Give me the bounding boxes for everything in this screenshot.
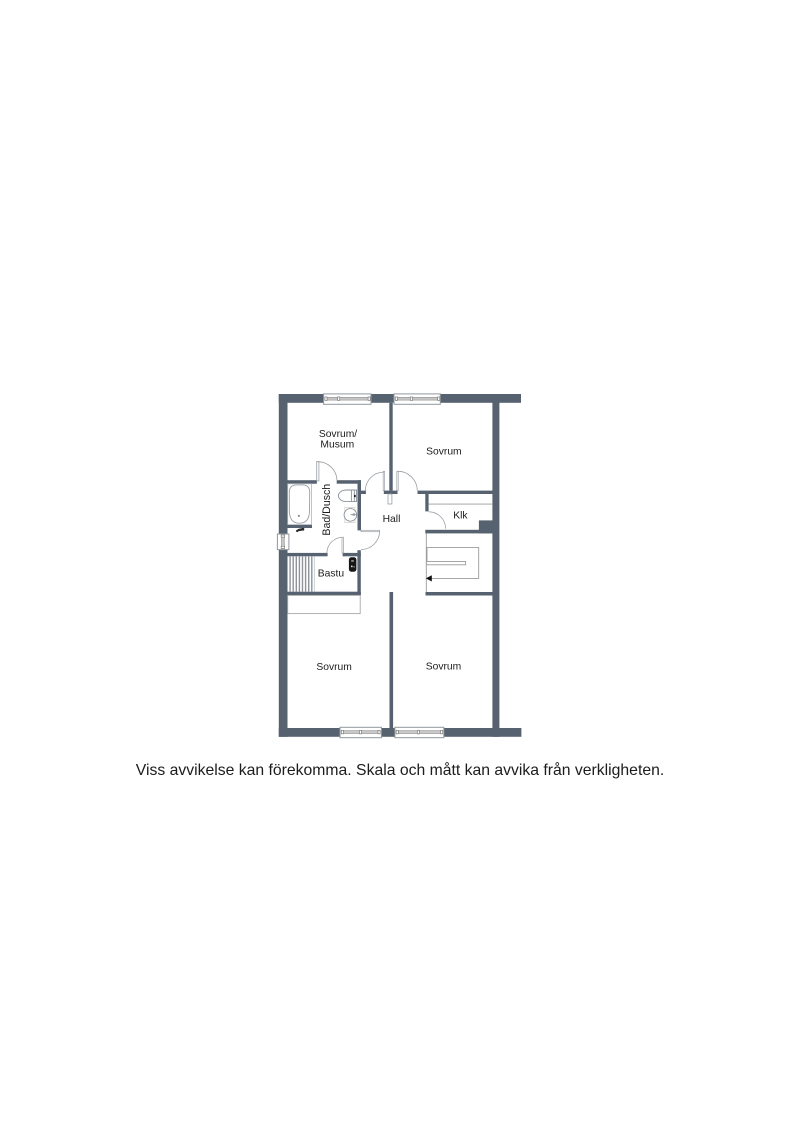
svg-text:Sovrum: Sovrum [426, 661, 461, 672]
svg-text:Musum: Musum [320, 439, 354, 450]
svg-text:Hall: Hall [383, 514, 401, 525]
svg-text:Sovrum: Sovrum [426, 446, 461, 457]
svg-text:Bad/Dusch: Bad/Dusch [321, 484, 333, 536]
svg-text:Sovrum: Sovrum [316, 662, 351, 673]
svg-text:Viss avvikelse kan förekomma.: Viss avvikelse kan förekomma. Skala och … [136, 761, 664, 779]
svg-text:Klk: Klk [453, 510, 468, 521]
svg-text:Bastu: Bastu [318, 569, 345, 580]
